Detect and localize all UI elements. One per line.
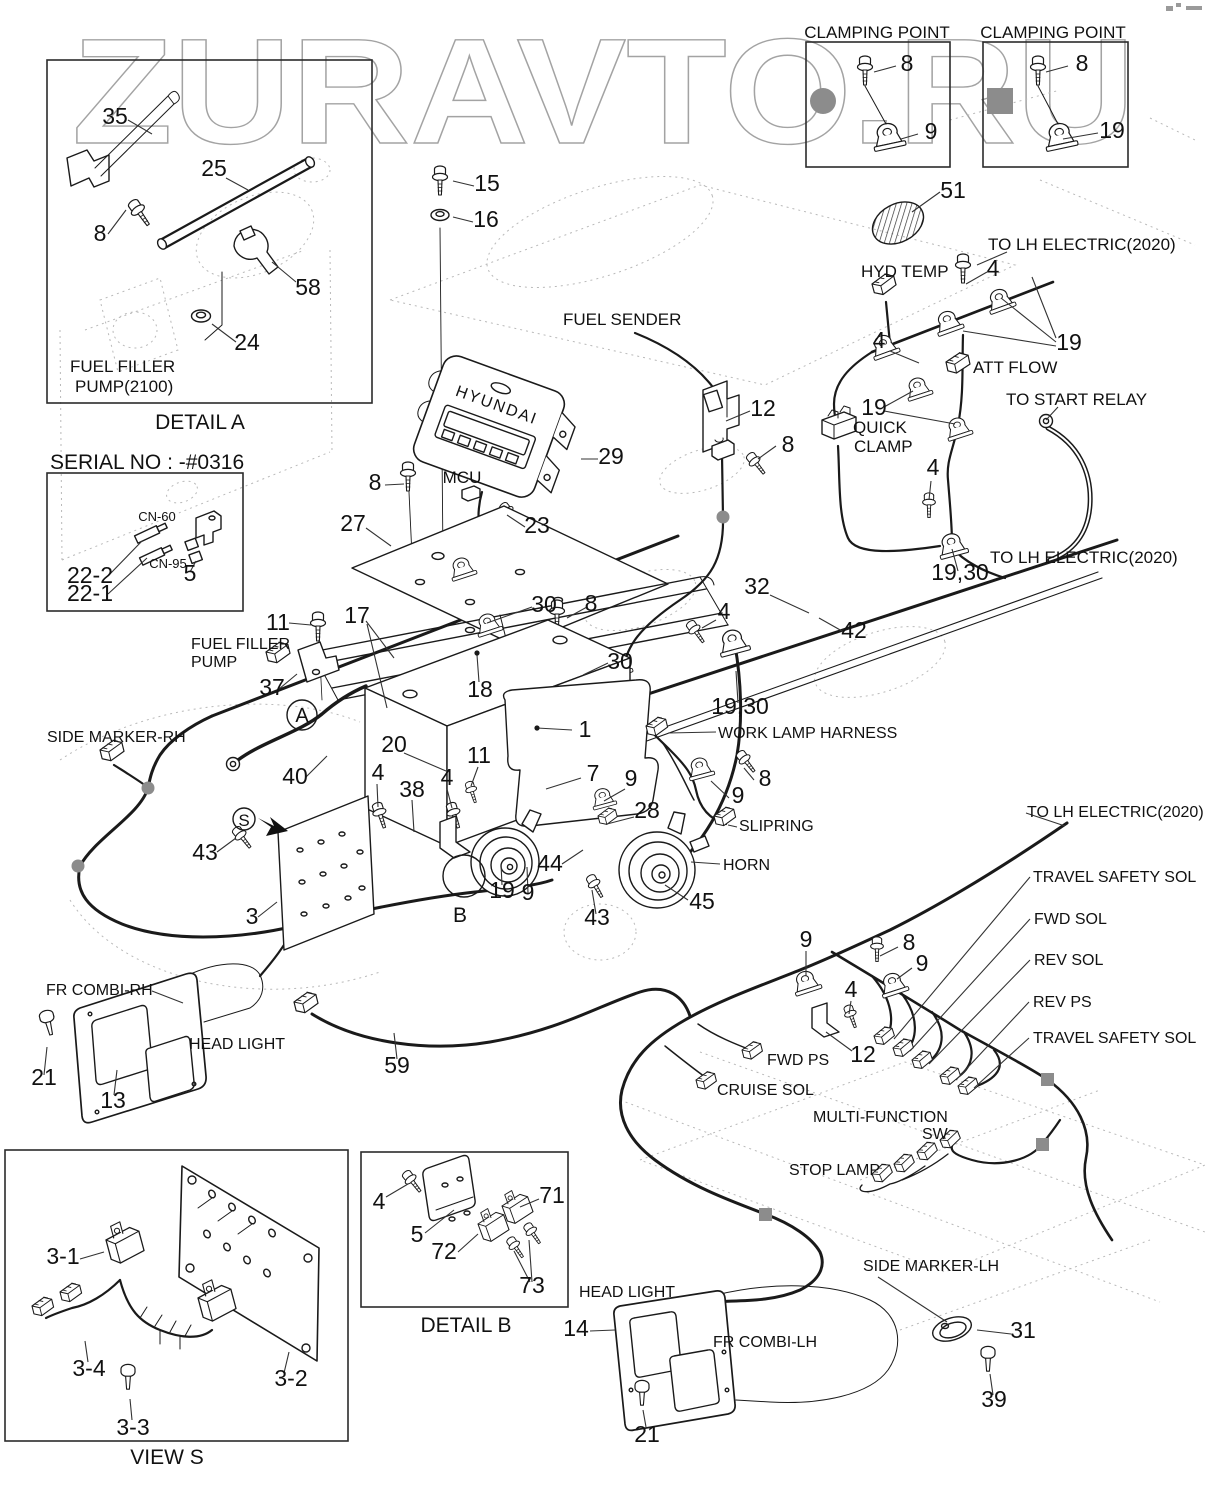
diagram-label: 17 (344, 602, 370, 628)
diagram-label: SW (922, 1126, 949, 1143)
diagram-label: CLAMPING POINT (804, 23, 949, 42)
clamp-marker-legend-square (987, 88, 1013, 114)
diagram-label: 59 (384, 1052, 410, 1078)
diagram-label: 45 (689, 888, 715, 914)
tube-clamp-58 (234, 226, 278, 274)
diagram-label: 11 (266, 609, 290, 635)
diagram-label: SERIAL NO : -#0316 (50, 451, 244, 474)
diagram-label: 42 (841, 617, 867, 643)
corner-mark (1166, 3, 1202, 11)
diagram-label: FR COMBI-LH (713, 1334, 817, 1351)
diagram-label: HEAD LIGHT (189, 1036, 285, 1053)
diagram-label: 38 (399, 776, 425, 802)
diagram-label: 19,30 (711, 693, 769, 719)
diagram-label: 39 (981, 1386, 1007, 1412)
diagram-label: FWD SOL (1034, 911, 1107, 928)
diagram-label: TO LH ELECTRIC(2020) (1027, 804, 1204, 821)
diagram-label: TRAVEL SAFETY SOL (1033, 869, 1196, 886)
rev-sol-connector (910, 1049, 934, 1071)
diagram-label: 4 (373, 1188, 386, 1214)
diagram-label: 4 (845, 976, 858, 1002)
diagram-label: 18 (467, 676, 493, 702)
wiring-parts-diagram: ZURAVTO.RU (0, 0, 1218, 1486)
diagram-label: 32 (744, 573, 770, 599)
diagram-label: 1 (579, 716, 592, 742)
diagram-label: 8 (1076, 50, 1089, 76)
diagram-label: TO START RELAY (1006, 390, 1147, 409)
diagram-label: B (453, 904, 467, 927)
diagram-label: 4 (718, 598, 731, 624)
diagram-label: 9 (625, 765, 638, 791)
diagram-label: 25 (201, 155, 227, 181)
multi-function-sw-connector-3 (892, 1152, 916, 1175)
diagram-label: 28 (634, 797, 660, 823)
diagram-label: 3-4 (72, 1355, 105, 1381)
diagram-label: 16 (473, 206, 499, 232)
diagram-label: 58 (295, 274, 321, 300)
diagram-label: 4 (372, 759, 385, 785)
diagram-label: 9 (925, 118, 938, 144)
diagram-label: 23 (524, 512, 550, 538)
diagram-label: FR COMBI-RH (46, 982, 153, 999)
diagram-label: FUEL FILLER (191, 636, 290, 653)
watermark-text: ZURAVTO.RU (72, 7, 1135, 175)
diagram-label: 27 (340, 510, 366, 536)
diagram-label: MULTI-FUNCTION (813, 1109, 948, 1126)
diagram-label: 29 (598, 443, 624, 469)
diagram-label: TO LH ELECTRIC(2020) (990, 548, 1178, 567)
diagram-label: 30 (607, 648, 633, 674)
diagram-label: 19 (489, 877, 515, 903)
diagram-label: 43 (192, 839, 218, 865)
diagram-label: 40 (282, 763, 308, 789)
diagram-label: SIDE MARKER-RH (47, 729, 186, 746)
diagram-label: 7 (587, 760, 600, 786)
diagram-label: 8 (759, 765, 772, 791)
diagram-label: 8 (903, 929, 916, 955)
diagram-label: CRUISE SOL (717, 1082, 814, 1099)
diagram-label: 4 (987, 255, 1000, 281)
diagram-label: 35 (102, 103, 128, 129)
diagram-label: 71 (539, 1182, 565, 1208)
diagram-label: TRAVEL SAFETY SOL (1033, 1030, 1196, 1047)
diagram-label: 22-1 (67, 580, 113, 606)
ring-terminal-40 (227, 758, 240, 771)
diagram-label: PUMP(2100) (75, 377, 173, 396)
diagram-label: FWD PS (767, 1052, 829, 1069)
diagram-label: 19 (1099, 117, 1125, 143)
headlight-lh (614, 1286, 898, 1431)
diagram-label: 3-3 (116, 1414, 149, 1440)
diagram-label: 8 (901, 50, 914, 76)
diagram-label: HORN (723, 857, 770, 874)
diagram-label: HYD TEMP (861, 262, 949, 281)
diagram-label: 31 (1010, 1317, 1036, 1343)
diagram-label: FUEL FILLER (70, 357, 175, 376)
diagram-label: 44 (537, 850, 563, 876)
diagram-label: CN-60 (138, 509, 176, 524)
quick-clamp-connector (822, 406, 856, 439)
diagram-label: CLAMP (854, 437, 913, 456)
diagram-label: 9 (732, 782, 745, 808)
diagram-label: 15 (474, 170, 500, 196)
relay-plate-3 (278, 796, 374, 950)
connector-59 (292, 990, 319, 1014)
diagram-label: 9 (522, 879, 535, 905)
diagram-label: CN-95 (149, 556, 187, 571)
diagram-label: STOP LAMP (789, 1162, 880, 1179)
diagram-label: 24 (234, 329, 260, 355)
diagram-label: 20 (381, 731, 407, 757)
side-marker-lamp-31 (930, 1312, 975, 1345)
diagram-label: TO LH ELECTRIC(2020) (988, 235, 1176, 254)
diagram-label: 13 (100, 1087, 126, 1113)
diagram-label: 5 (184, 560, 197, 586)
diagram-label: S (238, 811, 249, 830)
diagram-label: 8 (94, 220, 107, 246)
fwd-ps-connector (741, 1040, 764, 1061)
diagram-label: REV PS (1033, 994, 1092, 1011)
clamp-marker-legend-circle (810, 88, 836, 114)
diagram-label: 19 (1056, 329, 1082, 355)
diagram-label: 30 (531, 591, 557, 617)
diagram-label: FUEL SENDER (563, 310, 681, 329)
diagram-label: REV SOL (1034, 952, 1103, 969)
diagram-label: DETAIL A (155, 411, 245, 434)
diagram-label: 3-2 (274, 1365, 307, 1391)
diagram-label: 5 (411, 1221, 424, 1247)
diagram-label: 19,30 (931, 559, 989, 585)
diagram-label: 72 (431, 1238, 457, 1264)
diagram-label: MCU (443, 468, 482, 487)
diagram-label: 73 (519, 1272, 545, 1298)
diagram-label: 8 (585, 590, 598, 616)
diagram-label: 12 (850, 1041, 876, 1067)
harness-59 (312, 989, 690, 1046)
diagram-label: 9 (916, 950, 929, 976)
diagram-label: 3-1 (46, 1243, 79, 1269)
diagram-label: 14 (563, 1315, 589, 1341)
diagram-label: HEAD LIGHT (579, 1284, 675, 1301)
mcu-unit (402, 349, 584, 507)
mounting-plate-27 (352, 506, 668, 646)
diagram-label: 37 (259, 674, 285, 700)
diagram-label: QUICK (853, 418, 908, 437)
diagram-label: 4 (441, 764, 454, 790)
diagram-label: 43 (584, 904, 610, 930)
diagram-label: WORK LAMP HARNESS (718, 725, 897, 742)
slipring-connector (713, 805, 737, 827)
grommet-51 (865, 194, 931, 253)
diagram-label: 11 (467, 742, 491, 768)
travel-safety-sol-connector (872, 1025, 896, 1047)
parts-catalog-page: ZURAVTO.RU (0, 0, 1218, 1486)
bracket-12-sol (812, 1003, 839, 1037)
ring-terminal (1040, 415, 1053, 428)
detail-b-parts (423, 1156, 535, 1244)
diagram-label: 19 (861, 394, 887, 420)
hose-clamp-24 (192, 310, 211, 322)
diagram-label: 9 (800, 926, 813, 952)
diagram-label: DETAIL B (420, 1314, 511, 1337)
diagram-label: VIEW S (130, 1446, 204, 1469)
cruise-sol-connector (695, 1070, 718, 1091)
diagram-label: 4 (873, 327, 886, 353)
diagram-label: 4 (927, 454, 940, 480)
diagram-label: 51 (940, 177, 966, 203)
diagram-label: A (295, 705, 309, 727)
fwd-sol-connector (891, 1037, 915, 1059)
rev-ps-connector (938, 1065, 962, 1087)
diagram-label: SIDE MARKER-LH (863, 1258, 999, 1275)
diagram-label: PUMP (191, 654, 237, 671)
washer-16 (431, 210, 449, 221)
diagram-label: 8 (782, 431, 795, 457)
fuel-sender-bracket-12 (703, 381, 739, 460)
diagram-label: 8 (369, 469, 382, 495)
diagram-label: 3 (246, 903, 259, 929)
diagram-label: 21 (31, 1064, 57, 1090)
diagram-label: 21 (634, 1421, 660, 1447)
diagram-label: CLAMPING POINT (980, 23, 1125, 42)
diagram-label: ATT FLOW (973, 358, 1057, 377)
att-flow-connector (945, 351, 972, 375)
diagram-label: SLIPRING (739, 818, 814, 835)
diagram-label: 12 (750, 395, 776, 421)
